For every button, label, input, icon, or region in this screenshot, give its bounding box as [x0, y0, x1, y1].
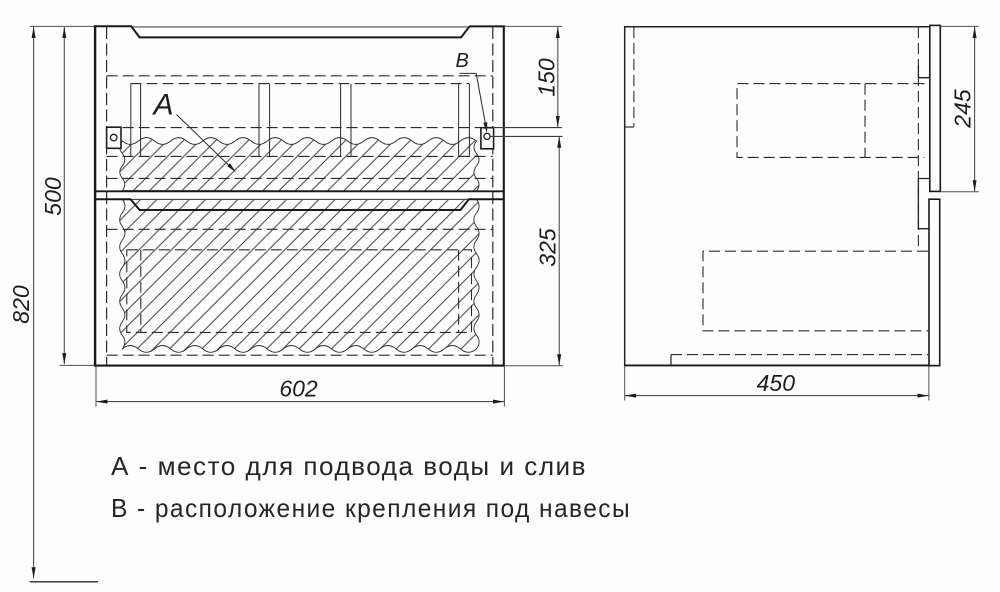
- svg-text:150: 150: [534, 58, 560, 97]
- svg-text:450: 450: [757, 370, 796, 396]
- svg-text:820: 820: [8, 285, 34, 324]
- svg-text:А - место для подвода воды и с: А - место для подвода воды и слив: [111, 451, 587, 481]
- svg-text:602: 602: [279, 376, 318, 402]
- svg-text:500: 500: [40, 177, 66, 216]
- svg-text:325: 325: [535, 228, 561, 267]
- svg-text:A: A: [152, 89, 174, 122]
- svg-text:245: 245: [950, 89, 976, 129]
- svg-text:В - расположение крепления под: В - расположение крепления под навесы: [111, 493, 631, 523]
- svg-text:B: B: [456, 50, 469, 72]
